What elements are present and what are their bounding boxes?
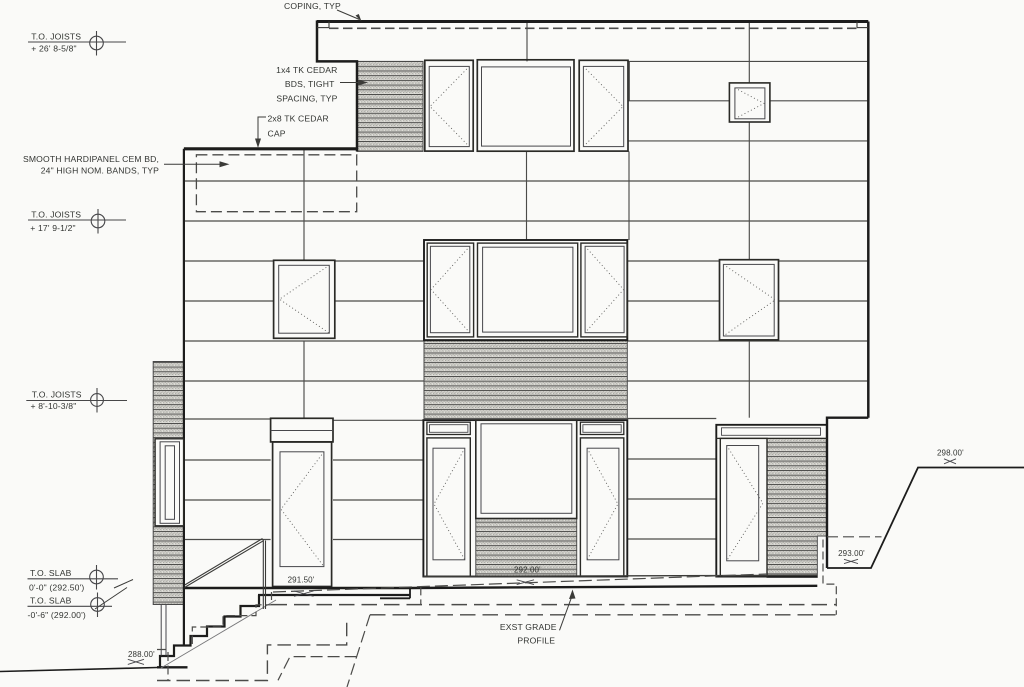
svg-text:PROFILE: PROFILE [517, 636, 555, 646]
svg-text:T.O. JOISTS: T.O. JOISTS [31, 32, 81, 42]
svg-text:291.50': 291.50' [288, 575, 315, 584]
svg-text:COPING, TYP: COPING, TYP [284, 1, 341, 11]
svg-text:SPACING, TYP: SPACING, TYP [276, 94, 337, 104]
svg-text:+ 8'-10-3/8": + 8'-10-3/8" [31, 401, 77, 411]
svg-text:298.00': 298.00' [937, 449, 964, 458]
svg-text:SMOOTH HARDIPANEL CEM BD,: SMOOTH HARDIPANEL CEM BD, [23, 154, 159, 164]
svg-text:1x4 TK CEDAR: 1x4 TK CEDAR [276, 65, 337, 75]
svg-text:EXST GRADE: EXST GRADE [500, 622, 557, 632]
svg-text:24" HIGH NOM. BANDS, TYP: 24" HIGH NOM. BANDS, TYP [41, 166, 159, 176]
svg-text:+ 17' 9-1/2": + 17' 9-1/2" [30, 223, 75, 233]
svg-text:BDS, TIGHT: BDS, TIGHT [285, 79, 335, 89]
svg-text:292.00': 292.00' [514, 566, 541, 575]
svg-text:-0'-6" (292.00'): -0'-6" (292.00') [28, 610, 86, 620]
svg-text:293.00': 293.00' [838, 549, 865, 558]
svg-text:0'-0" (292.50'): 0'-0" (292.50') [29, 583, 84, 593]
svg-text:T.O. JOISTS: T.O. JOISTS [32, 390, 82, 400]
svg-text:288.00': 288.00' [128, 650, 155, 659]
svg-text:+ 26' 8-5/8": + 26' 8-5/8" [31, 44, 76, 54]
svg-text:T.O. SLAB: T.O. SLAB [30, 568, 72, 578]
svg-text:2x8 TK CEDAR: 2x8 TK CEDAR [268, 114, 329, 124]
svg-text:T.O. JOISTS: T.O. JOISTS [31, 210, 81, 220]
svg-text:T.O. SLAB: T.O. SLAB [30, 596, 72, 606]
svg-text:CAP: CAP [268, 129, 286, 139]
